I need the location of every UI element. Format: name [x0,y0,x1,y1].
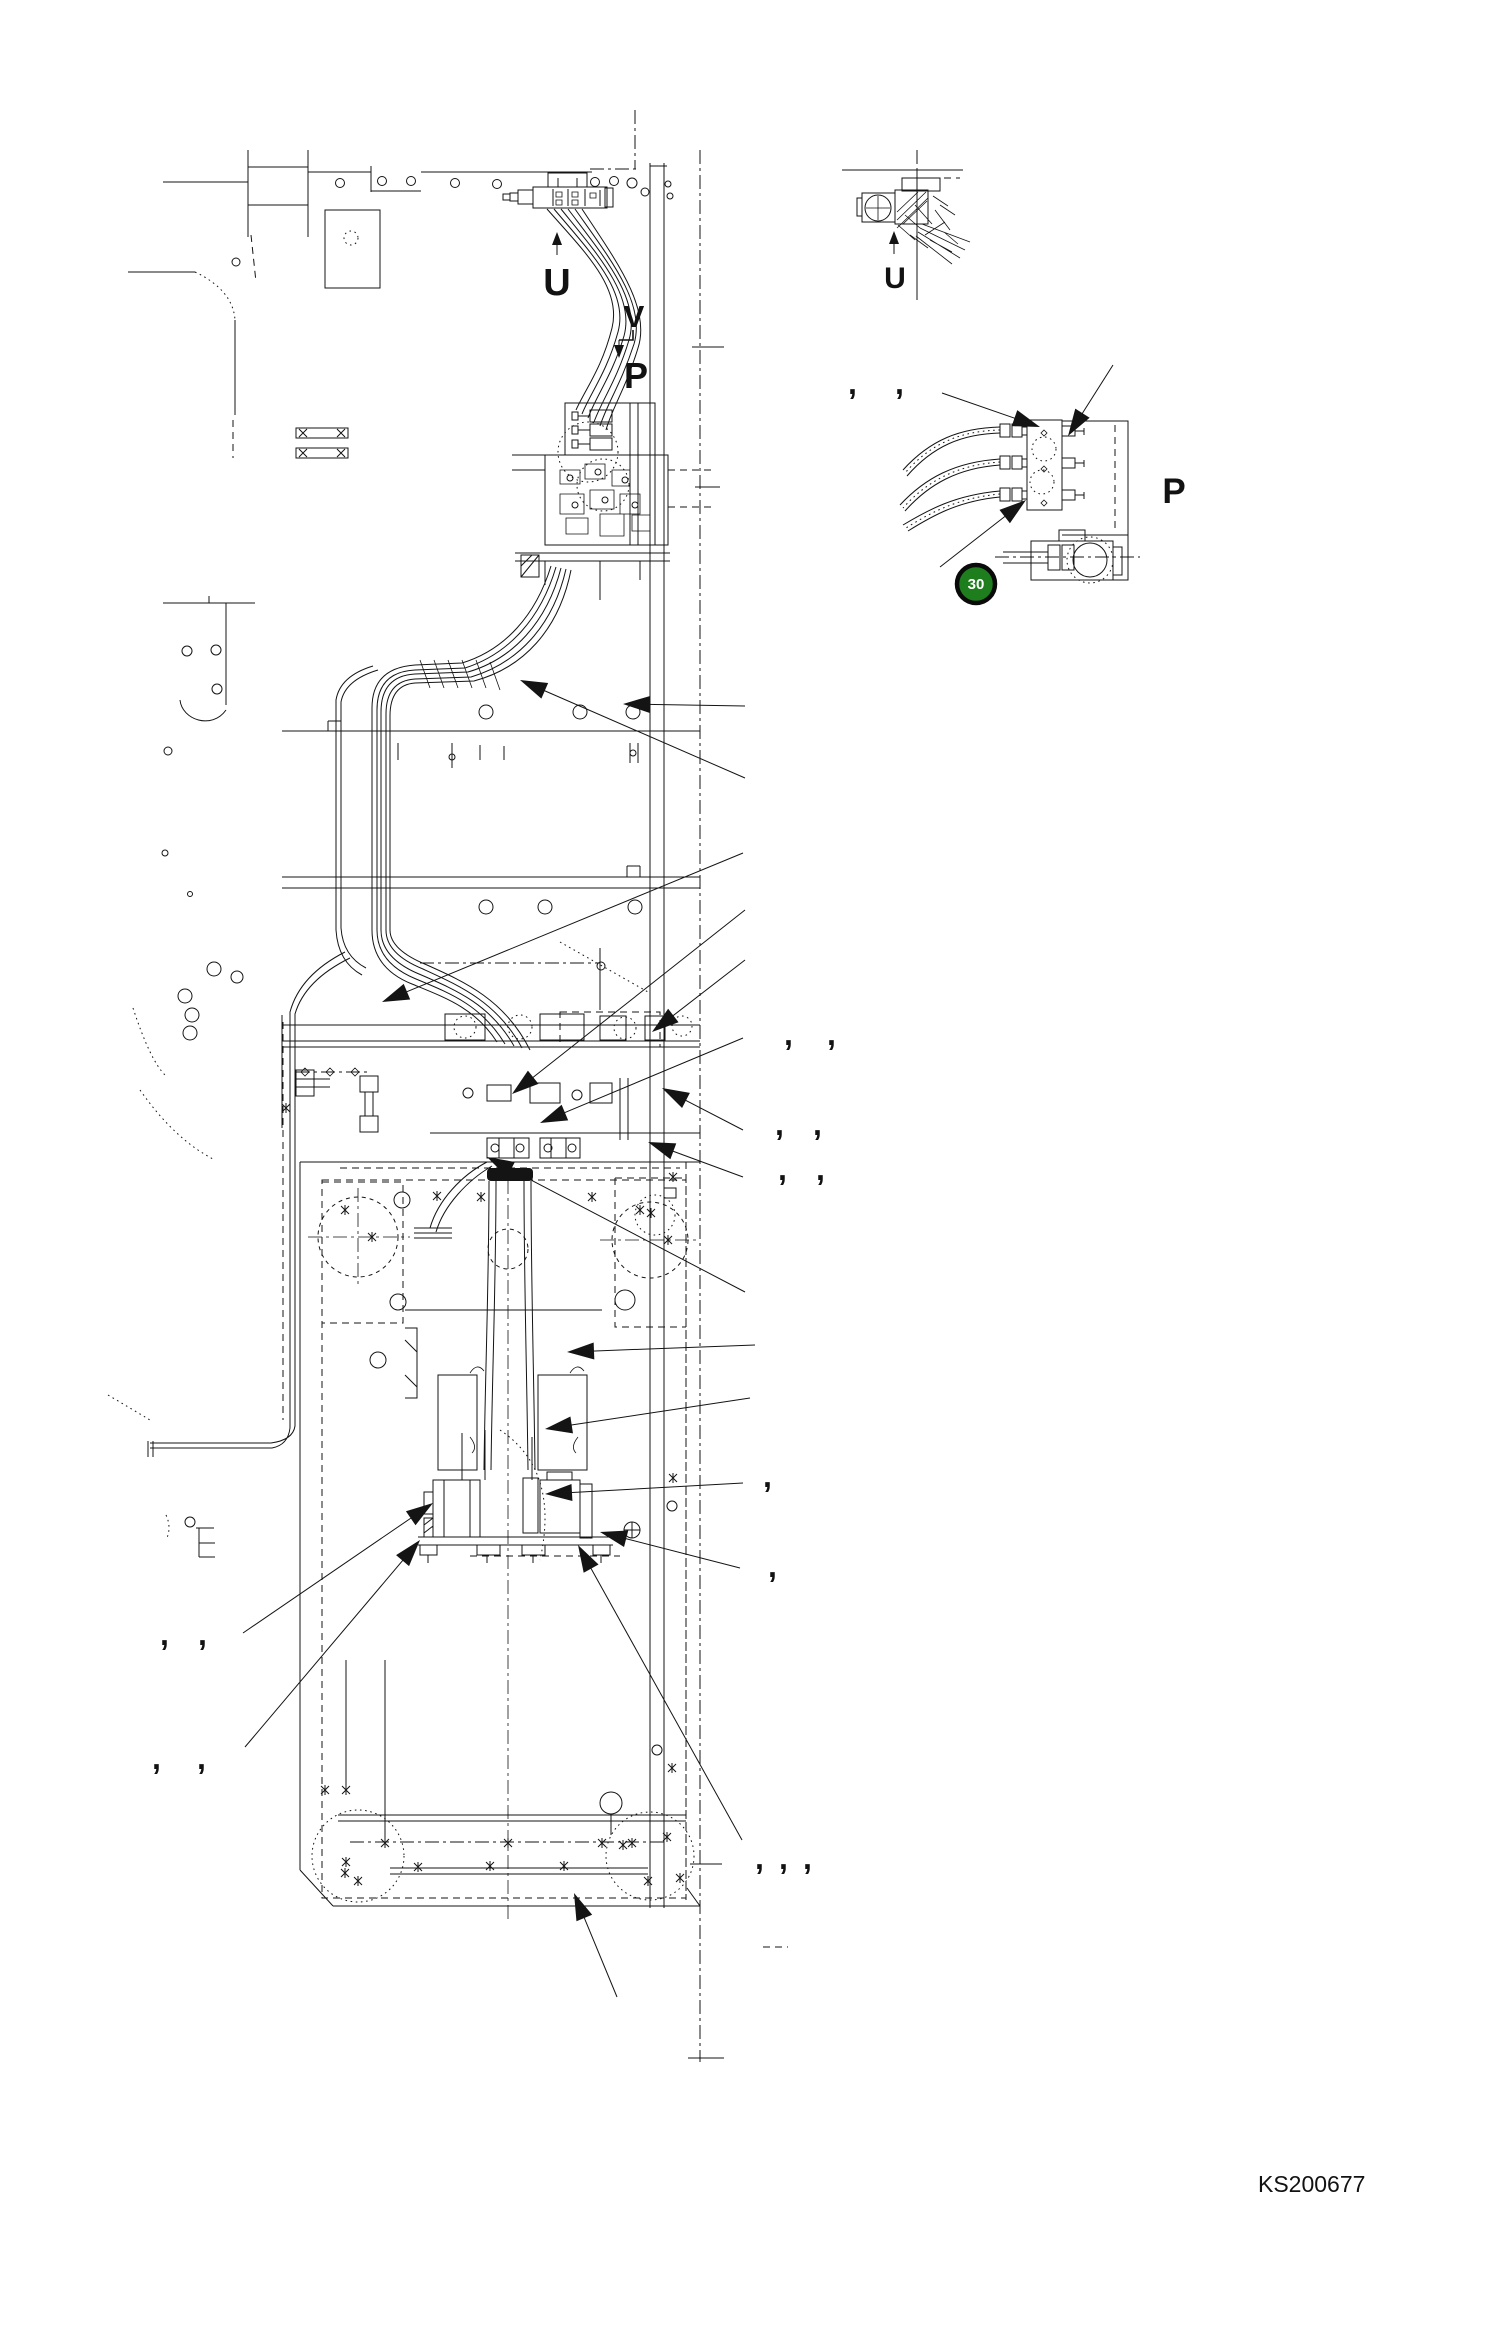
part-callout-comma: , [779,1840,788,1876]
part-callout-comma: , [784,1016,793,1052]
callout-arrow [545,1483,743,1501]
hydraulic-piping-diagram: UVPUP ,,,,,,,,,,,,,,,,, 30 KS200677 [0,0,1507,2341]
badge-label: 30 [968,576,985,593]
part-callout-comma: , [775,1106,784,1142]
part-callout-comma: , [763,1458,772,1494]
part-callout-comma: , [848,365,857,401]
section-arrow [614,340,624,358]
callout-arrows [243,365,1113,1997]
view-p-detail: P [1162,472,1185,511]
part-callout-comma: , [768,1548,777,1584]
part-callout-comma: , [803,1840,812,1876]
part-callout-comma: , [895,365,904,401]
engineering-drawing-page: UVPUP ,,,,,,,,,,,,,,,,, 30 KS200677 [0,0,1507,2341]
detail-view-u [842,150,970,300]
part-callout-comma: , [152,1740,161,1776]
part-callout-comma: , [778,1151,787,1187]
callout-arrow [487,1157,745,1292]
callout-arrow [243,1503,433,1633]
drawing-number: KS200677 [1258,2171,1365,2197]
view-labels: UVPUP [543,262,1185,511]
part-callout-comma: , [816,1151,825,1187]
callout-arrow [382,853,743,1002]
view-u-main: U [543,262,570,304]
callout-arrow [512,910,745,1094]
hydraulic-tank [308,1168,700,1920]
callout-arrow [545,1398,750,1433]
corner-bracket-glyph [196,1528,215,1557]
mid-manifold [282,1012,700,1470]
part-callout-comma: , [813,1106,822,1142]
callout-arrow [942,393,1040,427]
section-arrow [889,231,899,254]
upper-manifold [512,403,712,600]
view-u-detail: U [884,262,906,295]
section-arrow [552,232,562,255]
callout-arrow [623,696,745,713]
callout-arrow [600,1530,740,1568]
callout-arrow [652,960,745,1032]
part-callout-comma: , [198,1616,207,1652]
callout-arrow [540,1038,743,1123]
part-callout-comma: , [197,1740,206,1776]
pump-assembly [418,1430,677,1563]
callout-arrow [1068,365,1113,436]
part-callout-comma: , [160,1616,169,1652]
callout-arrow [520,680,745,778]
part-callout-comma: , [827,1016,836,1052]
callout-arrow [567,1343,755,1360]
view-v-main: V [624,299,645,334]
hose-scribble [898,196,970,264]
part-callout-comma: , [755,1840,764,1876]
callout-arrow [245,1540,420,1747]
callout-arrow [662,1088,743,1130]
bolt-marks [282,1103,684,1886]
detail-view-p [900,420,1140,583]
left-hose-lines [148,666,378,1457]
view-p-main: P [624,355,648,396]
callout-commas: ,,,,,,,,,,,,,,,,, [152,365,904,1876]
callout-arrow [574,1893,617,1997]
clamp-bars [296,428,348,458]
item-badge-30[interactable]: 30 [957,565,995,603]
hose-bundle-main [372,566,571,1050]
callout-arrow [648,1142,743,1177]
